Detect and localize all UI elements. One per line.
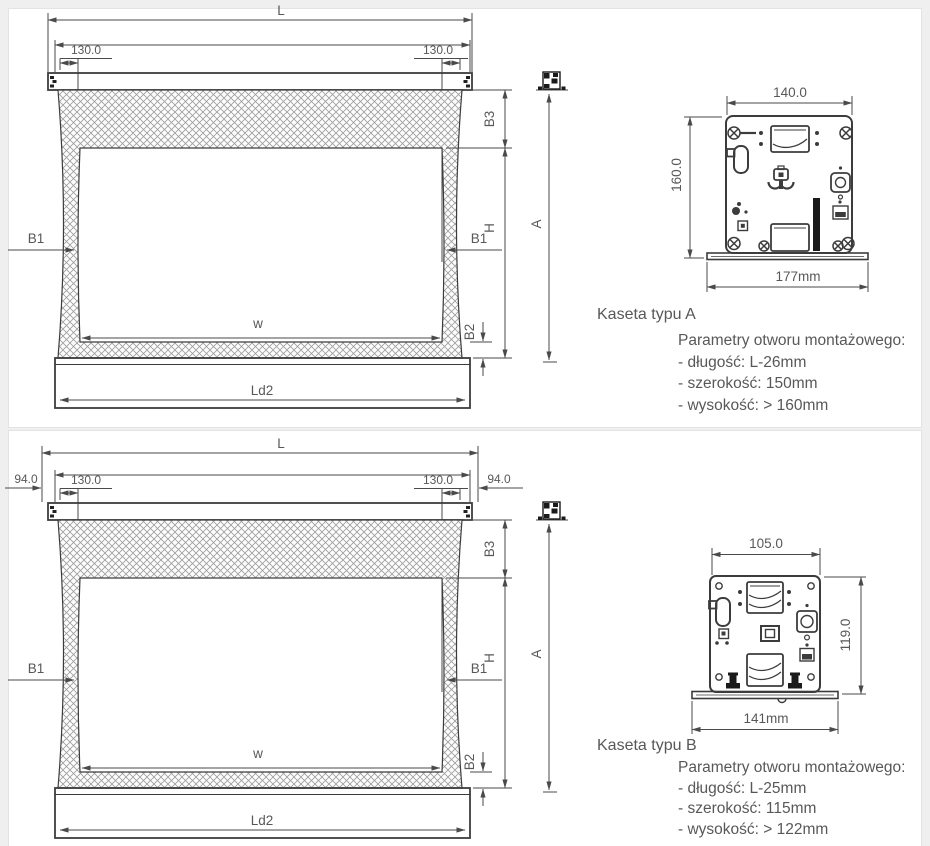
- dim-label-L-a: L: [277, 3, 285, 18]
- cassette-a-internals: [727, 126, 854, 251]
- params-a-height: - wysokość: > 160mm: [678, 395, 905, 417]
- dim-cassette-length-b: [55, 470, 470, 502]
- dim-94-right-b: 94.0: [479, 472, 523, 488]
- cassette-a-width-label: 140.0: [773, 85, 807, 100]
- dim-label-130-left-a: 130.0: [71, 43, 101, 57]
- cassette-b-base-label: 141mm: [743, 711, 788, 726]
- cassette-a-params: Parametry otworu montażowego: - długość:…: [678, 330, 905, 416]
- dim-label-94-left-b: 94.0: [14, 472, 38, 486]
- params-a-title: Parametry otworu montażowego:: [678, 330, 905, 352]
- cassette-endcap-right-b: [464, 506, 471, 518]
- dim-label-B2-b: B2: [462, 754, 477, 771]
- cassette-b-dim-width: 105.0: [712, 536, 820, 575]
- cassette-a-dim-width: 140.0: [727, 85, 852, 115]
- cassette-b-dim-base: 141mm: [692, 701, 838, 734]
- hanger-hook-icon: [769, 166, 794, 189]
- dim-L-b: L: [42, 436, 478, 502]
- dim-label-W-b: w: [252, 746, 263, 761]
- page: L 130.0 130.0: [0, 0, 930, 846]
- dim-A-a: A: [529, 72, 568, 362]
- dim-label-B1-left-b: B1: [28, 661, 45, 676]
- cassette-b-title: Kaseta typu B: [597, 737, 697, 755]
- dim-label-L-b: L: [277, 436, 285, 451]
- cassette-b-height-label: 119.0: [838, 619, 853, 652]
- cassette-a-drawing: 140.0 160.0 177mm: [669, 85, 868, 292]
- params-a-width: - szerokość: 150mm: [678, 373, 905, 395]
- params-a-length: - długość: L-26mm: [678, 352, 905, 374]
- params-b-title: Parametry otworu montażowego:: [678, 758, 905, 779]
- cassette-b-internals: [709, 582, 817, 689]
- cassette-endcap-right-a: [464, 76, 471, 88]
- dim-B2-a: B2: [462, 322, 492, 376]
- cassette-endcap-left-b: [50, 506, 57, 518]
- cassette-a-height-label: 160.0: [669, 158, 684, 192]
- dim-H-a: H: [473, 148, 512, 358]
- dim-label-94-right-b: 94.0: [487, 472, 511, 486]
- cassette-b-dim-height: 119.0: [824, 577, 866, 694]
- dim-94-left-b: 94.0: [5, 472, 41, 488]
- cassette-a-title: Kaseta typu A: [597, 306, 696, 324]
- cassette-b-drawing: 105.0 119.0 141mm: [692, 536, 866, 734]
- dim-label-B3-a: B3: [482, 111, 497, 128]
- dim-label-B2-a: B2: [462, 324, 477, 341]
- dim-H-b: H: [473, 578, 512, 788]
- dim-B2-b: B2: [462, 752, 492, 806]
- dim-label-130-right-a: 130.0: [423, 43, 453, 57]
- dim-130-right-b: 130.0: [414, 473, 468, 692]
- dim-W-a: w: [82, 316, 440, 338]
- screen-diagram-b: L 94.0 94.0 130.0: [5, 436, 568, 838]
- cassette-housing-a: [48, 73, 472, 90]
- dim-130-right-a: 130.0: [414, 43, 468, 262]
- ceiling-mount-icon-b: [536, 502, 568, 520]
- cassette-a-base-label: 177mm: [775, 269, 820, 284]
- dim-W-b: w: [82, 746, 440, 768]
- dim-Ld2-b: Ld2: [60, 813, 465, 830]
- dim-Ld2-a: Ld2: [60, 383, 465, 400]
- dim-label-A-b: A: [529, 649, 544, 658]
- dim-label-Ld2-b: Ld2: [251, 813, 274, 828]
- dim-label-B1-left-a: B1: [28, 231, 45, 246]
- dim-label-A-a: A: [529, 219, 544, 228]
- params-b-height: - wysokość: > 122mm: [678, 820, 905, 841]
- dim-L-a: L: [48, 3, 472, 72]
- dim-A-b: A: [529, 502, 568, 792]
- dim-label-B1-right-a: B1: [471, 231, 488, 246]
- params-b-width: - szerokość: 115mm: [678, 799, 905, 820]
- dim-label-B3-b: B3: [482, 541, 497, 558]
- dim-label-W-a: w: [252, 316, 263, 331]
- dim-label-B1-right-b: B1: [471, 661, 488, 676]
- cassette-b-flange: [692, 692, 838, 703]
- dim-label-130-left-b: 130.0: [71, 473, 101, 487]
- cassette-housing-b: [48, 503, 472, 520]
- screen-diagram-a: L 130.0 130.0: [8, 3, 568, 408]
- cassette-a-dim-height: 160.0: [669, 117, 722, 258]
- cassette-a-dim-base: 177mm: [707, 262, 868, 292]
- technical-drawing: L 130.0 130.0: [0, 0, 930, 846]
- dim-label-Ld2-a: Ld2: [251, 383, 274, 398]
- ceiling-mount-icon: [536, 72, 568, 90]
- dim-cassette-length-a: [55, 40, 470, 72]
- dim-label-130-right-b: 130.0: [423, 473, 453, 487]
- cassette-b-params: Parametry otworu montażowego: - długość:…: [678, 758, 905, 840]
- cassette-endcap-left-a: [50, 76, 57, 88]
- params-b-length: - długość: L-25mm: [678, 779, 905, 800]
- cassette-b-width-label: 105.0: [749, 536, 783, 551]
- cassette-a-plate: [726, 116, 852, 253]
